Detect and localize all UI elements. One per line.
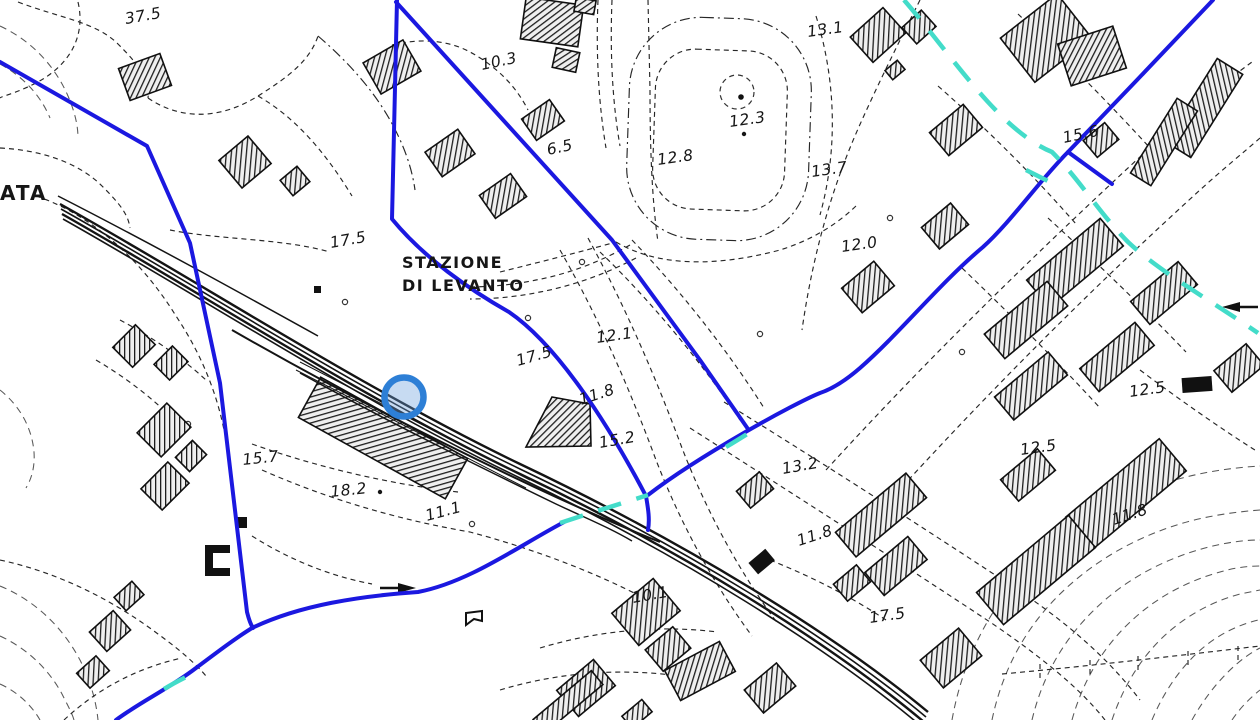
well-symbol: [959, 349, 964, 354]
building: [921, 203, 968, 249]
contour-line: [1192, 648, 1260, 720]
building: [154, 346, 188, 380]
contour-line: [1072, 566, 1260, 720]
spot-height-label: 17.5: [868, 604, 907, 627]
spot-height-dot: [378, 490, 382, 494]
aqueduct-dashed-lines: [164, 0, 1258, 689]
building: [1214, 344, 1260, 392]
railway-spur: [58, 196, 318, 336]
parcel-line: [252, 536, 372, 584]
building: [522, 100, 565, 141]
spot-height-label: 37.5: [124, 4, 163, 28]
well-symbol: [757, 331, 762, 336]
contour-line: [0, 390, 34, 488]
spot-height-label: 12.5: [1128, 378, 1167, 401]
building: [119, 54, 172, 101]
building: [141, 462, 189, 510]
building: [219, 136, 271, 188]
contour-line: [0, 586, 98, 720]
utility-line: [648, 0, 1213, 495]
shed-symbol: [466, 611, 482, 625]
spot-height-label: 12.0: [840, 233, 879, 256]
edge-place-label: ATA: [0, 181, 48, 205]
spot-height-label: 12.1: [595, 324, 634, 347]
solid-rect-symbol: [1182, 376, 1213, 393]
marker-ring[interactable]: [385, 378, 424, 417]
station-name-line2: DI LEVANTO: [402, 276, 525, 295]
building: [622, 700, 652, 720]
selected-location-marker[interactable]: [385, 378, 424, 417]
building: [574, 0, 596, 15]
building: [425, 129, 475, 177]
map-labels: ATA STAZIONE DI LEVANTO 37.5 10.3 6.5 12…: [0, 4, 1167, 627]
utility-line: [116, 521, 566, 720]
building: [280, 166, 310, 195]
sports-field-inner: [651, 48, 789, 213]
building: [137, 403, 191, 457]
spot-height-label: 12.3: [728, 108, 767, 131]
building: [552, 48, 580, 73]
building: [885, 60, 905, 79]
building: [363, 40, 421, 94]
spot-height-label: 12.8: [656, 146, 695, 169]
contour-line: [0, 684, 40, 720]
parcel-line: [170, 230, 330, 252]
building: [865, 537, 927, 596]
well-symbol: [469, 521, 474, 526]
building: [77, 656, 110, 688]
spot-height-label: 13.7: [810, 158, 849, 181]
sports-field-outline: [624, 15, 814, 243]
contour-line: [1232, 690, 1260, 720]
building: [977, 515, 1096, 624]
parcel-line: [36, 196, 224, 430]
spot-height-label: 18.2: [330, 479, 368, 501]
parcel-line: [597, 0, 606, 148]
bracket-symbol: [209, 549, 230, 572]
spot-height-label: 12.5: [1019, 436, 1058, 459]
spot-height-label: 10.3: [479, 49, 518, 74]
spot-height-label: 11.1: [423, 498, 463, 525]
station-name-line1: STAZIONE: [402, 253, 503, 272]
contour-line: [1152, 620, 1258, 720]
well-symbol: [887, 215, 892, 220]
building: [850, 8, 905, 63]
spot-height-dot: [742, 132, 746, 136]
well-symbol: [525, 315, 530, 320]
contour-line: [992, 510, 1260, 720]
parcel-line: [611, 0, 620, 146]
building: [833, 565, 870, 601]
parcel-line: [148, 36, 318, 114]
buildings: [77, 0, 1260, 720]
parcel-line: [0, 560, 206, 676]
spot-height-label: 17.5: [514, 342, 554, 369]
building: [920, 628, 981, 688]
map-canvas[interactable]: ATA STAZIONE DI LEVANTO 37.5 10.3 6.5 12…: [0, 0, 1260, 720]
building: [175, 440, 206, 471]
parcel-line: [632, 240, 764, 408]
parcel-line: [262, 470, 644, 598]
spot-height-label: 17.5: [329, 228, 368, 252]
building: [744, 663, 795, 713]
spot-height-label: 13.2: [781, 454, 820, 478]
utility-line: [646, 496, 649, 530]
well-symbol: [579, 259, 584, 264]
map-svg: ATA STAZIONE DI LEVANTO 37.5 10.3 6.5 12…: [0, 0, 1260, 720]
building: [842, 261, 895, 313]
spot-height-label: 15.7: [242, 447, 280, 469]
hachure-track: [1002, 646, 1260, 674]
spot-height-label: 6.5: [545, 136, 574, 159]
well-symbol: [342, 299, 347, 304]
spot-height-label: 15.2: [598, 428, 637, 452]
building: [114, 581, 144, 610]
spot-height-label: 13.1: [806, 18, 845, 41]
field-center-dot: [738, 94, 744, 100]
building-solid: [748, 549, 774, 575]
building: [930, 104, 983, 155]
contour-line: [0, 64, 50, 118]
building: [479, 174, 526, 219]
field-center-circle: [720, 75, 754, 109]
parcel-line: [816, 16, 832, 215]
spot-height-label: 11.8: [577, 380, 617, 408]
contour-line: [0, 636, 74, 720]
building: [113, 325, 155, 367]
parcel-line: [872, 138, 1260, 520]
building: [89, 611, 130, 652]
square-symbol: [314, 286, 321, 293]
spot-height-label: 11.8: [795, 521, 835, 549]
utility-line: [392, 0, 646, 496]
building: [995, 352, 1068, 420]
